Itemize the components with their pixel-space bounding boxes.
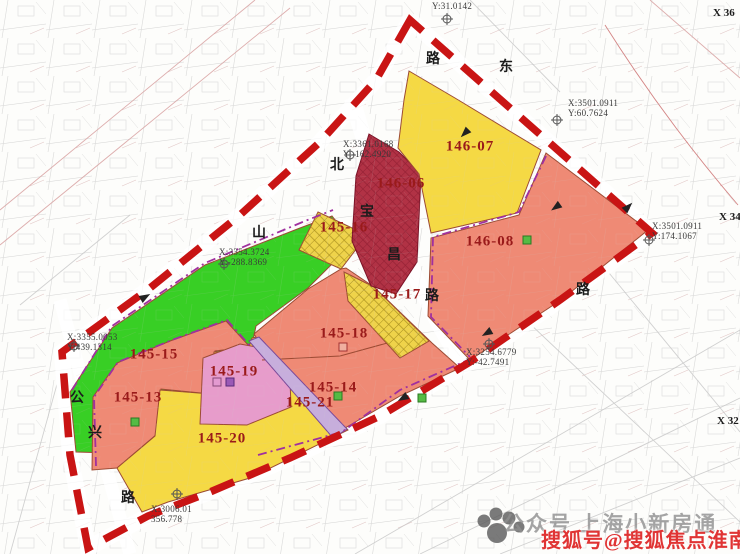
road-char-gong: 公 — [70, 387, 84, 407]
coord-label-center: X:3361.0168 Y:-162.4920 — [343, 139, 394, 159]
zone-label-145-19: 145-19 — [210, 364, 259, 381]
grid-label-x32: X 32 — [717, 415, 739, 427]
zone-label-146-07: 146-07 — [446, 139, 495, 156]
zone-label-145-17: 145-17 — [373, 287, 422, 304]
legend-square — [339, 343, 347, 351]
coord-label-west: X:3355.0053 Y:439.1314 — [67, 332, 118, 352]
zone-label-145-18: 145-18 — [320, 326, 369, 343]
coord-line: X:3501.0911 — [568, 98, 618, 108]
road-char-lu-left: 路 — [121, 487, 135, 507]
road-char-lu-top: 路 — [426, 48, 440, 68]
zone-label-145-20: 145-20 — [198, 431, 247, 448]
coord-line: Y:-162.4920 — [343, 149, 391, 159]
coord-line: X:3006.01 — [151, 504, 192, 514]
coord-label-se: X:3254.6779 Y:-42.7491 — [466, 347, 517, 367]
legend-square — [523, 236, 531, 244]
road-char-bei: 北 — [330, 154, 344, 174]
grid-label-x34: X 34 — [719, 211, 740, 223]
coord-label-sw: X:3006.01 356.778 — [151, 504, 192, 524]
road-char-lu-mid: 路 — [425, 285, 439, 305]
legend-square — [418, 394, 426, 402]
planning-map: 145-13 145-14 145-15 145-16 145-17 145-1… — [0, 0, 740, 554]
coord-line: Y:439.1314 — [67, 342, 112, 352]
watermark-sohu: 搜狐号@搜狐焦点淮南站 — [541, 524, 740, 553]
coord-line: X:3501.0911 — [652, 221, 702, 231]
coord-label-nw: X:3354.3724 Y:-288.8369 — [219, 247, 270, 267]
zone-label-145-16: 145-16 — [320, 220, 369, 237]
road-char-chang: 昌 — [387, 244, 401, 264]
zone-label-145-21: 145-21 — [286, 395, 335, 412]
coord-line: X:3354.3724 — [219, 247, 270, 257]
coord-line: Y:60.7624 — [568, 108, 608, 118]
coord-label-top: Y:31.0142 — [432, 1, 472, 11]
road-char-dong: 东 — [499, 56, 513, 76]
coord-line: Y:-42.7491 — [466, 357, 509, 367]
grid-label-x36: X 36 — [713, 7, 735, 19]
zone-label-145-13: 145-13 — [114, 390, 163, 407]
overlay-texture — [0, 0, 740, 554]
coord-line: Y:-288.8369 — [219, 257, 267, 267]
coord-line: Y:174.1067 — [652, 231, 697, 241]
zone-label-146-08: 146-08 — [466, 234, 515, 251]
coord-line: X:3254.6779 — [466, 347, 517, 357]
legend-square — [131, 418, 139, 426]
coord-line: X:3355.0053 — [67, 332, 118, 342]
road-char-xing: 兴 — [88, 422, 102, 442]
zone-label-146-06: 146-06 — [377, 176, 426, 193]
coord-line: X:3361.0168 — [343, 139, 394, 149]
zone-label-145-15: 145-15 — [130, 347, 179, 364]
coord-label-east: X:3501.0911 Y:174.1067 — [652, 221, 702, 241]
road-char-bao: 宝 — [360, 201, 374, 221]
coord-label-ne: X:3501.0911 Y:60.7624 — [568, 98, 618, 118]
road-char-lu-right: 路 — [576, 279, 590, 299]
coord-line: Y:31.0142 — [432, 1, 472, 11]
road-char-shan: 山 — [252, 222, 266, 242]
coord-line: 356.778 — [151, 514, 182, 524]
map-canvas — [0, 0, 740, 554]
